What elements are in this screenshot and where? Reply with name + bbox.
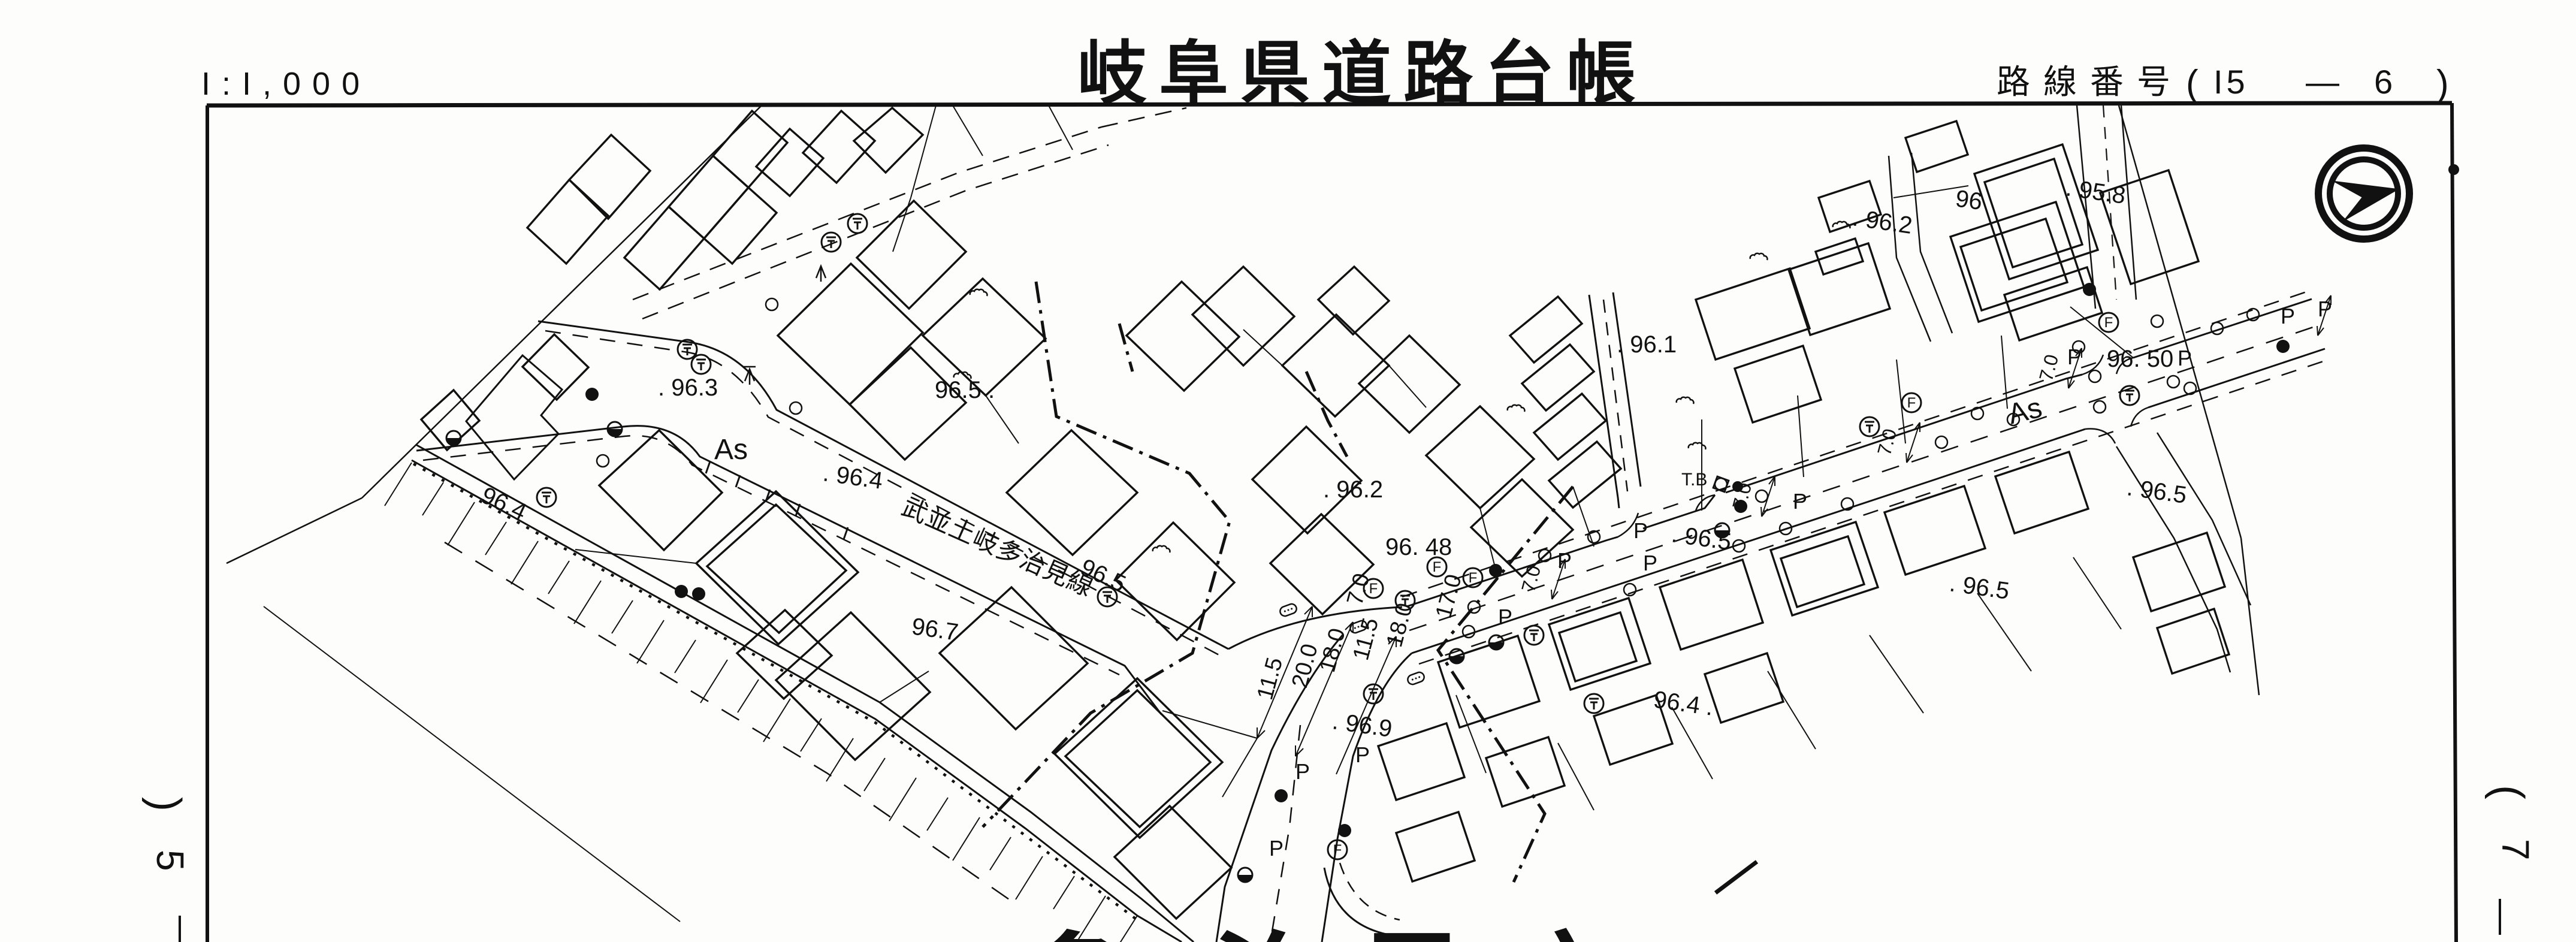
svg-text:P: P (2318, 297, 2332, 321)
svg-text:P: P (1295, 759, 1310, 784)
svg-text:—: — (2306, 63, 2339, 101)
svg-text:P: P (1793, 489, 1807, 514)
svg-text:P: P (1498, 605, 1512, 629)
svg-text:P: P (1557, 548, 1572, 573)
svg-text:96. 48: 96. 48 (1385, 534, 1452, 560)
svg-text:(: ( (2186, 63, 2198, 104)
svg-text:番: 番 (2090, 63, 2124, 101)
svg-text:多: 多 (1016, 924, 1130, 942)
svg-text:路: 路 (1997, 63, 2030, 101)
svg-text:岐阜県道路台帳: 岐阜県道路台帳 (1077, 35, 1648, 113)
svg-text:F: F (1433, 559, 1442, 575)
svg-text:7: 7 (2494, 839, 2537, 861)
svg-text:F: F (2104, 315, 2113, 331)
svg-text:96.5 .: 96.5 . (935, 377, 995, 403)
svg-text:96. 50: 96. 50 (2107, 346, 2173, 372)
svg-text:F: F (1469, 570, 1478, 586)
svg-text:): ) (2436, 63, 2449, 104)
svg-text:(: ( (2484, 785, 2532, 799)
svg-text:T.B: T.B (1681, 470, 1707, 490)
svg-text:P: P (2281, 304, 2295, 328)
svg-text:. 96.1: . 96.1 (1617, 331, 1677, 358)
svg-text:治: 治 (1211, 924, 1325, 942)
svg-text:線: 線 (2043, 63, 2077, 101)
svg-text:P: P (1269, 836, 1284, 861)
svg-text:P: P (2178, 346, 2192, 370)
svg-text:I5: I5 (2213, 63, 2249, 101)
svg-text:P: P (1355, 742, 1370, 767)
svg-text:5: 5 (149, 850, 192, 871)
svg-text:P: P (1633, 518, 1648, 543)
svg-text:F: F (1907, 395, 1916, 411)
svg-text:. 96.3: . 96.3 (658, 375, 718, 401)
svg-text:市: 市 (1510, 924, 1624, 942)
svg-text:I : I , 0 0 0: I : I , 0 0 0 (201, 66, 361, 102)
svg-text:. 96.2: . 96.2 (1323, 476, 1383, 503)
svg-text:): ) (141, 797, 189, 811)
svg-text:96: 96 (1954, 185, 1984, 215)
svg-text:As: As (714, 434, 748, 466)
svg-text:F: F (1369, 581, 1378, 597)
svg-text:P: P (1643, 551, 1657, 575)
svg-text:P: P (2067, 345, 2082, 369)
svg-text:号: 号 (2137, 63, 2170, 101)
svg-text:6: 6 (2374, 63, 2393, 101)
svg-text:F: F (1333, 842, 1342, 858)
svg-text:見: 見 (1355, 924, 1469, 942)
